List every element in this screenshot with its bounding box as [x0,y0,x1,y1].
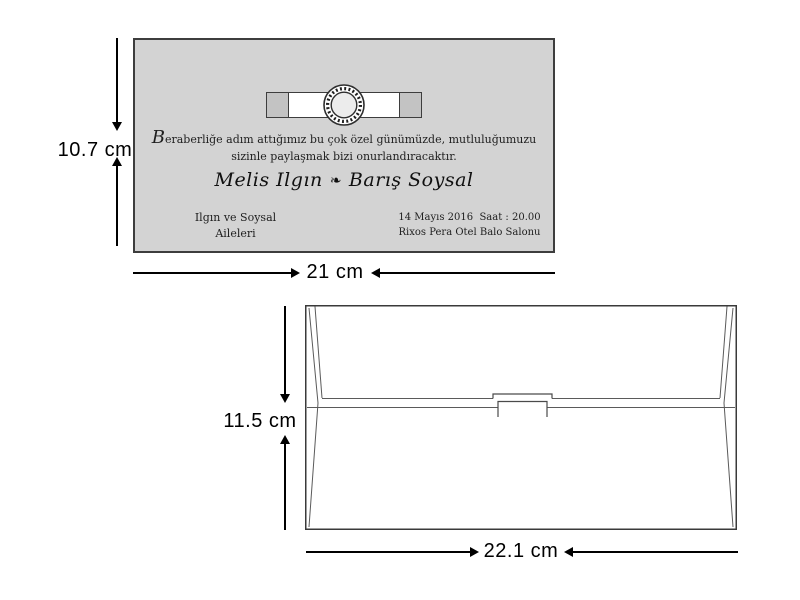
envelope-outline [306,306,737,530]
invitation-card: Beraberliğe adım attığımız bu çok özel g… [133,38,555,253]
ribbon-cap-left [267,93,289,117]
arrow-down-icon [280,394,290,403]
envelope-width-label: 22.1 cm [477,540,565,563]
event-date-time: 14 Mayıs 2016 Saat : 20.00 [387,210,552,225]
dimension-line [306,551,470,553]
arrow-up-icon [112,157,122,166]
arrow-left-icon [564,547,573,557]
message-line1-text: eraberliğe adım attığımız bu çok özel gü… [165,133,536,146]
ribbon-band [266,92,422,118]
groom-name: Barış Soysal [349,169,474,191]
hosts-line2: Aileleri [163,226,308,242]
drop-cap: B [152,127,165,148]
dimension-line [116,166,118,246]
envelope-diagram [305,305,737,530]
arrow-up-icon [280,435,290,444]
arrow-left-icon [371,268,380,278]
event-details: 14 Mayıs 2016 Saat : 20.00 Rixos Pera Ot… [387,210,552,240]
dimension-line [380,272,555,274]
spec-sheet: 10.7 cm Beraberliğe adım attığımız bu ço… [0,0,800,600]
dimension-line [284,306,286,394]
dimension-line [284,444,286,530]
card-height-label: 10.7 cm [47,139,143,162]
couple-names: Melis Ilgın❧Barış Soysal [135,169,553,191]
envelope-height-label: 11.5 cm [212,410,308,433]
dimension-line [116,38,118,122]
flourish-ornament-icon: ❧ [323,173,349,189]
ribbon-cap-right [399,93,421,117]
medallion-icon [322,83,366,127]
card-width-label: 21 cm [296,261,374,284]
bride-name: Melis Ilgın [214,169,322,191]
event-venue: Rixos Pera Otel Balo Salonu [387,225,552,240]
host-families: Ilgın ve Soysal Aileleri [163,210,308,242]
arrow-down-icon [112,122,122,131]
message-line2: sizinle paylaşmak bizi onurlandıracaktır… [135,149,553,166]
hosts-line1: Ilgın ve Soysal [163,210,308,226]
dimension-line [573,551,738,553]
message-line1: Beraberliğe adım attığımız bu çok özel g… [135,129,553,149]
dimension-line [133,272,291,274]
invitation-message: Beraberliğe adım attığımız bu çok özel g… [135,129,553,165]
